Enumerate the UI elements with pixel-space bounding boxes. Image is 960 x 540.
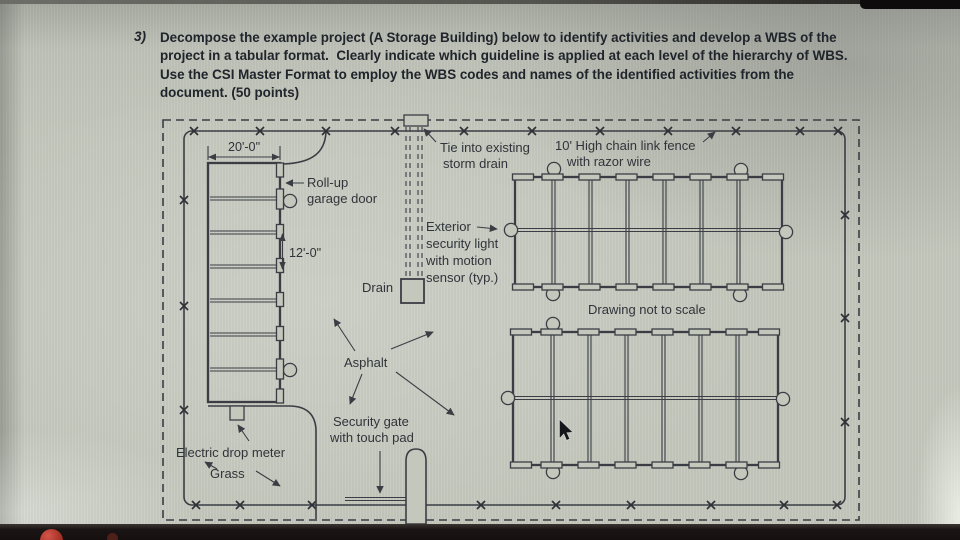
glare-reflection [914,380,960,540]
dimension-width: 20'-0" [208,140,280,160]
gate-label-line2: with touch pad [329,430,414,445]
dimension-bay: 12'-0" [279,233,321,270]
security-gate [345,449,426,524]
asphalt-label: Asphalt [344,355,388,370]
document-page: 3) Decompose the example project (A Stor… [0,0,960,540]
center-wall-line [508,397,783,400]
rollup-door-label-line1: Roll-up [307,175,348,190]
garage-building [208,163,297,420]
storage-building-bottom-outline [513,332,778,465]
property-line-dashed [163,120,859,520]
light-label-line4: sensor (typ.) [426,270,498,285]
asphalt-arrow-sw [350,374,362,404]
asphalt-arrow-ne [391,332,433,349]
fence-arrow [703,132,715,142]
grass-label: Grass [210,466,245,481]
security-light-icon [283,363,296,376]
scale-note-label: Drawing not to scale [588,302,706,317]
meter-arrow [238,425,249,441]
electric-drop-meter-box [230,406,244,420]
storm-drain [401,115,428,303]
garage-unit-dividers [210,197,278,371]
screen-bezel-bottom [0,524,960,540]
dimension-width-label: 20'-0" [228,140,260,154]
light-arrow [477,227,497,229]
screen-photo: 3) Decompose the example project (A Stor… [0,0,960,540]
light-label-line3: with motion [425,253,492,268]
grass-arrow-right [256,471,280,486]
storage-building-top [504,162,792,301]
rollup-door-label-line2: garage door [307,191,378,206]
storm-drain-tie-in-box [404,115,428,126]
tie-in-label-line1: Tie into existing [440,140,530,155]
gate-label-line1: Security gate [333,414,409,429]
screen-bezel-top [0,0,960,4]
drain-box [401,279,424,303]
security-light-icon [501,391,514,404]
storage-unit-dividers [551,334,739,463]
mouse-cursor [560,420,573,441]
small-red-dot [107,533,118,540]
security-light-icon [283,194,296,207]
storage-building-bottom [501,317,789,479]
fence-label-line2: with razor wire [566,154,651,169]
light-label-line2: security light [426,236,499,251]
tie-in-label-line2: storm drain [443,156,508,171]
light-label-line1: Exterior [426,219,471,234]
curb-arc-top [283,132,326,164]
meter-label: Electric drop meter [176,445,286,460]
gate-post-arch [406,449,426,524]
dimension-bay-label: 12'-0" [289,246,321,260]
storm-drain-pipe [406,127,422,279]
screen-bezel-top-right [860,0,960,9]
fence-label-line1: 10' High chain link fence [555,138,696,153]
drain-label: Drain [362,280,393,295]
asphalt-arrow-se [396,372,454,415]
curb-line-driveway [208,406,316,519]
security-light-icon [779,225,792,238]
asphalt-arrow-nw [334,319,355,351]
security-light-icon [504,223,517,236]
security-light-icon [776,392,789,405]
site-plan-drawing: 20'-0" 12'-0" [0,0,960,540]
garage-building-outline [208,163,280,402]
